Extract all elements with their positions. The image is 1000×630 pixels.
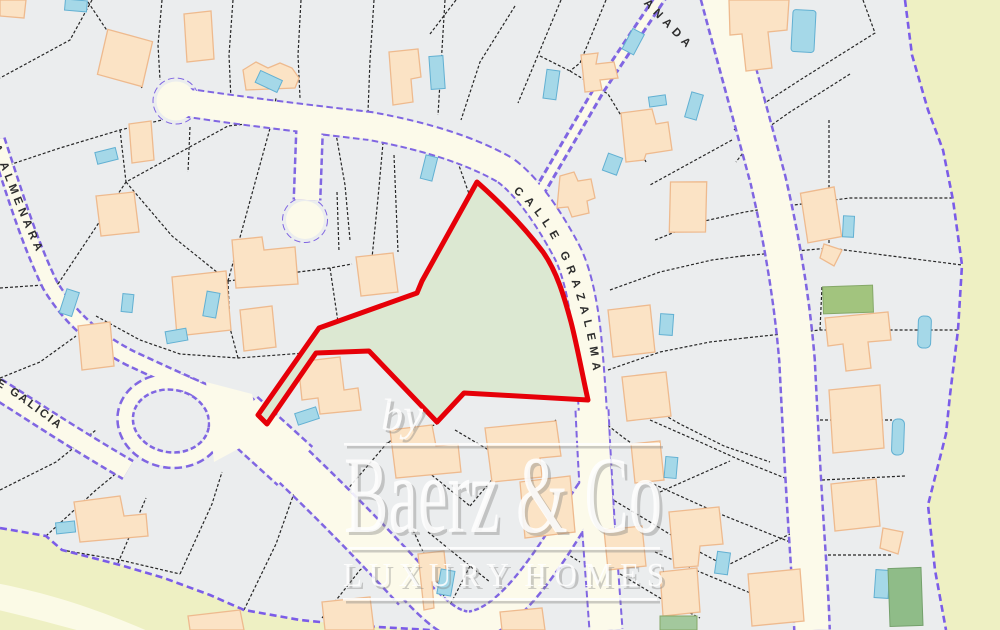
svg-text:L U X U R Y H O M E S: L U X U R Y H O M E S [343, 557, 664, 594]
svg-text:by: by [381, 389, 424, 440]
svg-text:Baerz & Co: Baerz & Co [344, 434, 662, 556]
